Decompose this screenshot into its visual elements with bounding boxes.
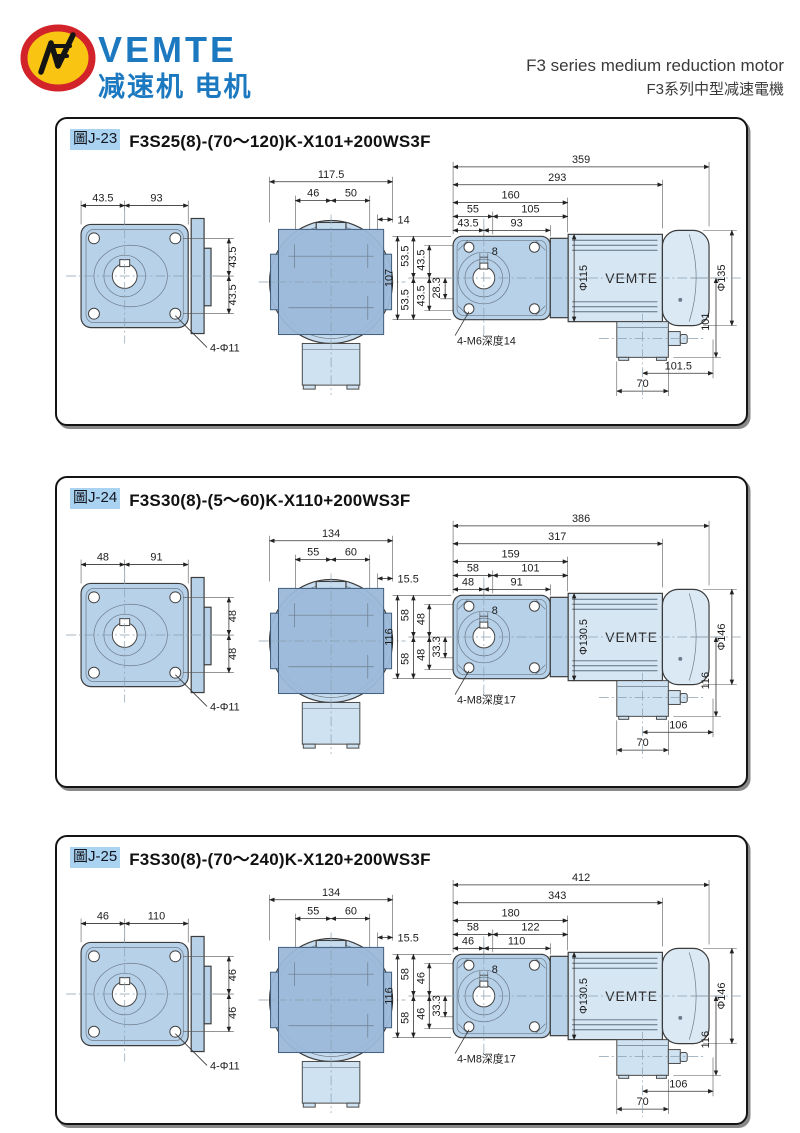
dim-label: 116	[384, 628, 396, 645]
dim-label: 46	[415, 1008, 427, 1020]
dim-label: 91	[150, 552, 162, 564]
dim-label: 58	[467, 922, 479, 934]
dim-label: 53.5	[399, 289, 411, 310]
dim-label: 60	[345, 547, 357, 559]
hole-callout: 4-Φ11	[210, 342, 240, 354]
dim-label: 116	[384, 987, 396, 1004]
front-view: 43.5 93 43.5 43.5 4-Φ11	[66, 193, 240, 355]
tap-callout: 4-M8深度17	[457, 1051, 516, 1065]
main-view: 386 317 159 58 101 48 91 116 58 58 48 48…	[384, 513, 741, 758]
dim-label: 48	[415, 649, 427, 661]
dim-label: 106	[669, 1078, 687, 1090]
hole-callout: 4-Φ11	[210, 1060, 240, 1072]
series-title-block: F3 series medium reduction motor F3系列中型减…	[526, 56, 784, 99]
dim-face: 160	[502, 190, 520, 202]
hole-callout: 4-Φ11	[210, 701, 240, 713]
dim-label: 33.3	[431, 995, 443, 1016]
dim-label: 134	[322, 887, 340, 899]
dim-label: 101	[521, 563, 539, 575]
company-logo: VEMTE 减速机 电机	[12, 6, 272, 106]
dim-body: 343	[548, 890, 566, 902]
dim-label: 43.5	[415, 285, 427, 306]
dim-label: 43.5	[227, 284, 239, 305]
dim-label: 43.5	[227, 247, 239, 268]
key-dim: 8	[492, 246, 498, 258]
dim-label: 15.5	[398, 932, 419, 944]
dim-label: 58	[467, 563, 479, 575]
dim-body: 317	[548, 531, 566, 543]
dim-label: 46	[227, 1007, 239, 1019]
dim-label: 58	[399, 968, 411, 980]
dim-label: 15.5	[398, 573, 419, 585]
dim-label: 48	[415, 613, 427, 625]
figure-panel-j23: 圖J-23 F3S25(8)-(70～120)K-X101+200WS3F 43…	[55, 117, 748, 426]
dim-label: 93	[511, 217, 523, 229]
dim-label: 55	[307, 906, 319, 918]
dim-label: 106	[669, 719, 687, 731]
figure-badge: 圖J-24	[70, 488, 120, 509]
dim-label: 28.3	[431, 277, 443, 298]
tap-callout: 4-M8深度17	[457, 692, 516, 706]
dim-label: 110	[148, 911, 165, 923]
dim-label: 55	[467, 204, 479, 216]
dim-label: 58	[399, 653, 411, 665]
technical-drawing: 46 110 46 46 4-Φ11 134 55 60 15.5	[57, 871, 747, 1121]
figure-panel-j25: 圖J-25 F3S30(8)-(70～240)K-X120+200WS3F 46…	[55, 835, 748, 1125]
figure-header: 圖J-25 F3S30(8)-(70～240)K-X120+200WS3F	[57, 837, 746, 871]
dim-body: 293	[548, 172, 566, 184]
dim-label: 46	[307, 188, 319, 200]
dim-label: 46	[227, 969, 239, 981]
dim-label: 46	[462, 935, 474, 947]
brand-subtext: 减速机 电机	[98, 72, 253, 102]
series-title-en: F3 series medium reduction motor	[526, 56, 784, 76]
dim-label: 101.5	[665, 360, 692, 372]
dim-label: 93	[150, 193, 162, 205]
dim-label: 43.5	[457, 217, 478, 229]
front-view: 48 91 48 48 4-Φ11	[66, 552, 240, 714]
dim-label: 116	[700, 672, 712, 689]
technical-drawing: 43.5 93 43.5 43.5 4-Φ11 117.5 46 50 1	[57, 153, 747, 403]
dim-label: 110	[508, 935, 525, 947]
dim-label: 48	[97, 552, 109, 564]
dim-label: 91	[511, 576, 523, 588]
dim-overall: 412	[572, 872, 590, 884]
key-dim: 8	[492, 605, 498, 617]
key-dim: 8	[492, 964, 498, 976]
dim-label: 48	[227, 610, 239, 622]
dim-face: 159	[502, 549, 520, 561]
page-header: VEMTE 减速机 电机 F3 series medium reduction …	[0, 0, 800, 112]
dim-label: 101	[700, 313, 712, 331]
dim-overall: 386	[572, 513, 590, 525]
dim-label: 58	[399, 609, 411, 621]
main-view: 359 293 160 55 105 43.5 93 107 53.5 53.5…	[384, 154, 741, 399]
dim-label: 43.5	[92, 193, 113, 205]
figure-panel-j24: 圖J-24 F3S30(8)-(5～60)K-X110+200WS3F 48 9…	[55, 476, 748, 788]
dim-label: 55	[307, 547, 319, 559]
figure-model: F3S25(8)-(70～120)K-X101+200WS3F	[129, 127, 430, 152]
tap-callout: 4-M6深度14	[457, 333, 516, 347]
dim-label: 48	[227, 648, 239, 660]
main-view: 412 343 180 58 122 46 110 116 58 58 46 4…	[384, 872, 741, 1117]
figure-header: 圖J-23 F3S25(8)-(70～120)K-X101+200WS3F	[57, 119, 746, 153]
dim-label: 122	[521, 922, 539, 934]
dim-label: 14	[398, 214, 410, 226]
series-title-zh: F3系列中型减速電機	[526, 78, 784, 99]
figure-model: F3S30(8)-(70～240)K-X120+200WS3F	[129, 845, 430, 870]
front-view: 46 110 46 46 4-Φ11	[66, 911, 240, 1073]
dim-label: 116	[700, 1031, 712, 1048]
dim-label: 134	[322, 528, 340, 540]
figure-badge: 圖J-23	[70, 129, 120, 150]
dim-face: 180	[502, 908, 520, 920]
figure-header: 圖J-24 F3S30(8)-(5～60)K-X110+200WS3F	[57, 478, 746, 512]
dim-overall: 359	[572, 154, 590, 166]
dim-label: 50	[345, 188, 357, 200]
brand-text: VEMTE	[98, 29, 237, 70]
dim-label: 46	[97, 911, 109, 923]
dim-label: 43.5	[415, 250, 427, 271]
dim-label: 53.5	[399, 246, 411, 267]
figure-model: F3S30(8)-(5～60)K-X110+200WS3F	[129, 486, 410, 511]
dim-label: 48	[462, 576, 474, 588]
dim-label: 46	[415, 972, 427, 984]
dim-label: 107	[384, 269, 396, 287]
dim-label: 105	[521, 204, 539, 216]
dim-label: 60	[345, 906, 357, 918]
dim-label: 33.3	[431, 636, 443, 657]
dim-label: 117.5	[318, 169, 344, 181]
dim-label: 58	[399, 1012, 411, 1024]
figure-badge: 圖J-25	[70, 847, 120, 868]
technical-drawing: 48 91 48 48 4-Φ11 134 55 60 15.5	[57, 512, 747, 762]
